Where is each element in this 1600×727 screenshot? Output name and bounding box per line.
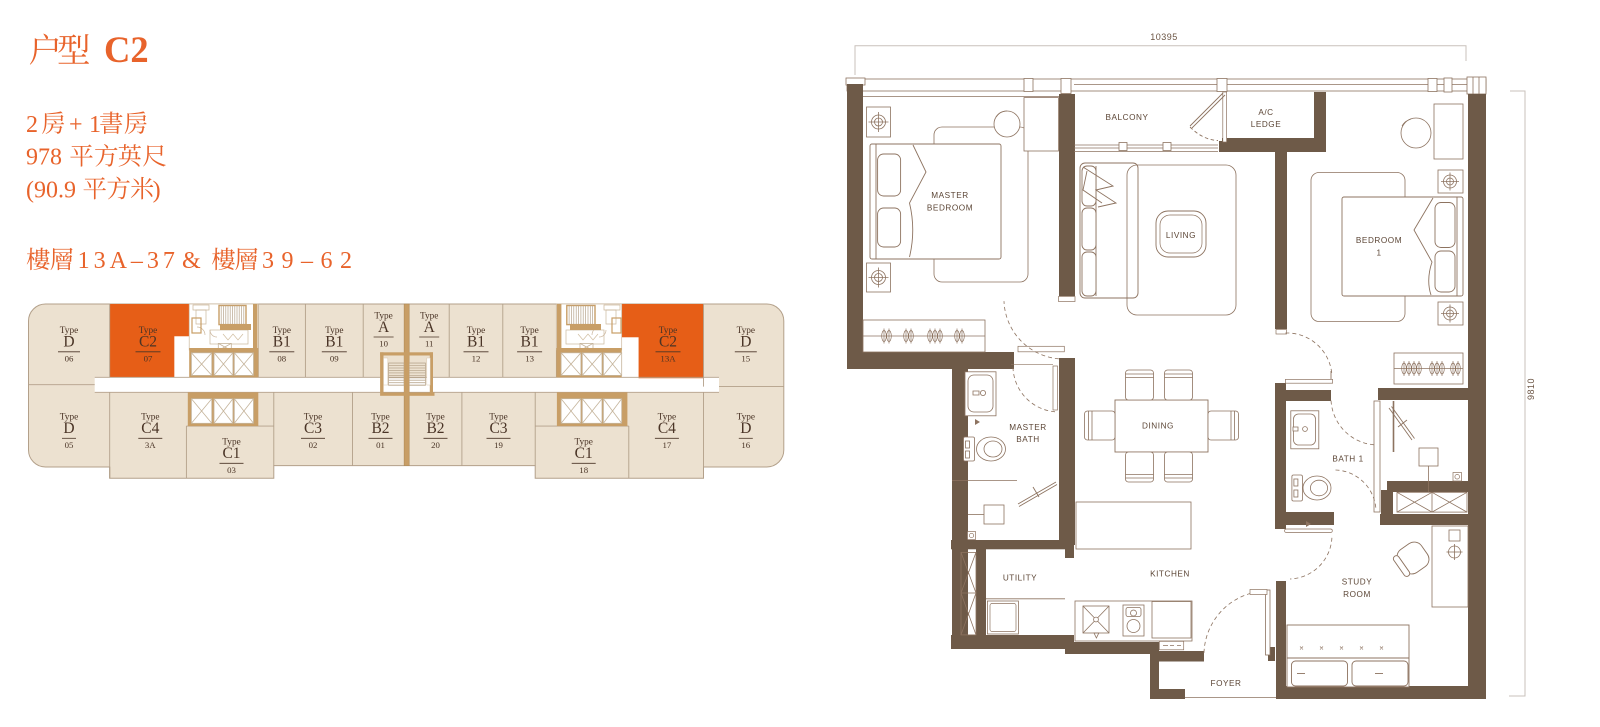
svg-text:C2: C2 [104, 29, 149, 70]
svg-text:2: 2 [26, 112, 38, 138]
svg-text:11: 11 [425, 339, 433, 349]
svg-text:07: 07 [144, 354, 153, 364]
svg-text:3A: 3A [145, 440, 156, 450]
svg-text:20: 20 [431, 440, 440, 450]
svg-text:39–62: 39–62 [262, 248, 360, 274]
svg-text:STUDY: STUDY [1342, 578, 1373, 587]
svg-text:ROOM: ROOM [1343, 590, 1371, 599]
svg-text:C4: C4 [658, 420, 676, 437]
svg-text:UTILITY: UTILITY [1003, 574, 1037, 583]
svg-text:10395: 10395 [1150, 32, 1178, 42]
svg-text:C3: C3 [304, 420, 322, 437]
svg-text:05: 05 [65, 440, 74, 450]
svg-text:01: 01 [376, 440, 385, 450]
svg-text:10: 10 [379, 339, 388, 349]
svg-text:18: 18 [579, 465, 588, 475]
svg-text:A: A [424, 319, 436, 336]
svg-text:C4: C4 [141, 420, 159, 437]
svg-text:12: 12 [472, 354, 481, 364]
svg-text:9810: 9810 [1526, 378, 1536, 400]
svg-text:B1: B1 [273, 334, 291, 351]
svg-text:15: 15 [741, 354, 750, 364]
svg-text:BEDROOM: BEDROOM [1356, 236, 1402, 245]
svg-text:DINING: DINING [1142, 422, 1174, 431]
svg-text:D: D [740, 420, 751, 437]
svg-text:C1: C1 [575, 445, 593, 462]
svg-text:C2: C2 [139, 334, 157, 351]
svg-text:13A: 13A [660, 354, 676, 364]
svg-text:C1: C1 [222, 445, 240, 462]
svg-text:): ) [153, 177, 161, 203]
svg-text:&: & [182, 248, 201, 274]
svg-text:1: 1 [89, 112, 101, 138]
svg-text:13: 13 [525, 354, 534, 364]
svg-text:LIVING: LIVING [1166, 231, 1196, 240]
svg-text:D: D [63, 334, 74, 351]
svg-text:08: 08 [277, 354, 286, 364]
svg-text:03: 03 [227, 465, 236, 475]
svg-text:B2: B2 [426, 420, 444, 437]
svg-text:MASTER: MASTER [931, 191, 968, 200]
svg-text:B1: B1 [467, 334, 485, 351]
svg-text:D: D [63, 420, 74, 437]
svg-text:FOYER: FOYER [1211, 679, 1242, 688]
svg-text:MASTER: MASTER [1009, 423, 1046, 432]
svg-text:09: 09 [330, 354, 339, 364]
svg-text:BEDROOM: BEDROOM [927, 204, 973, 213]
svg-text:B1: B1 [521, 334, 539, 351]
svg-text:D: D [740, 334, 751, 351]
svg-text:A: A [378, 319, 390, 336]
svg-text:978: 978 [26, 145, 62, 171]
svg-text:(90.9: (90.9 [26, 177, 76, 203]
svg-text:KITCHEN: KITCHEN [1150, 570, 1190, 579]
svg-text:13A–37: 13A–37 [78, 248, 179, 274]
svg-text:06: 06 [65, 354, 74, 364]
svg-text:16: 16 [741, 440, 750, 450]
svg-text:02: 02 [309, 440, 318, 450]
svg-text:+: + [69, 112, 83, 138]
svg-text:1: 1 [1376, 249, 1381, 258]
svg-text:BATH 1: BATH 1 [1332, 455, 1363, 464]
svg-text:C2: C2 [659, 334, 677, 351]
svg-text:LEDGE: LEDGE [1251, 120, 1282, 129]
svg-text:B2: B2 [371, 420, 389, 437]
svg-text:19: 19 [494, 440, 503, 450]
svg-text:A/C: A/C [1258, 108, 1273, 117]
svg-text:B1: B1 [325, 334, 343, 351]
svg-text:BATH: BATH [1016, 435, 1039, 444]
svg-text:17: 17 [663, 440, 672, 450]
svg-text:C3: C3 [489, 420, 507, 437]
svg-text:BALCONY: BALCONY [1106, 113, 1149, 122]
